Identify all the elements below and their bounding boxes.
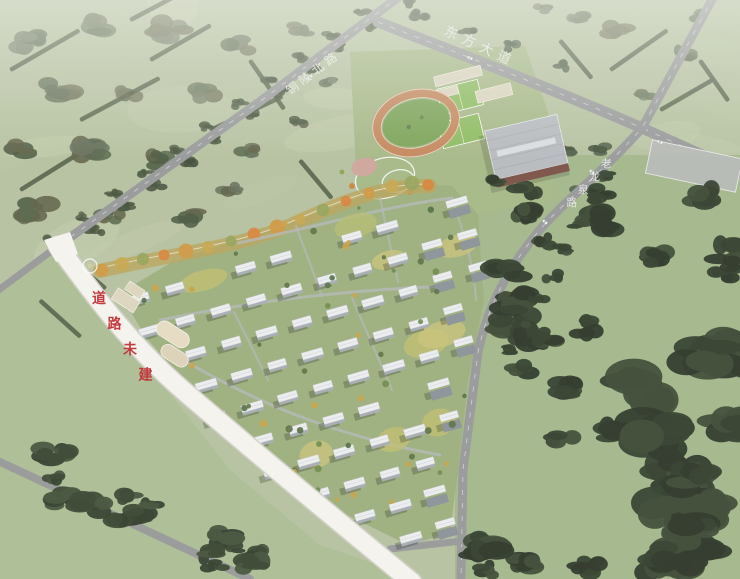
masterplan-rendering: 铜陵北路 东方大道 老龙泉路 道路未建 <box>0 0 740 579</box>
aerial-scene: 铜陵北路 东方大道 老龙泉路 道路未建 <box>0 0 740 579</box>
tint-overlay <box>0 0 740 579</box>
